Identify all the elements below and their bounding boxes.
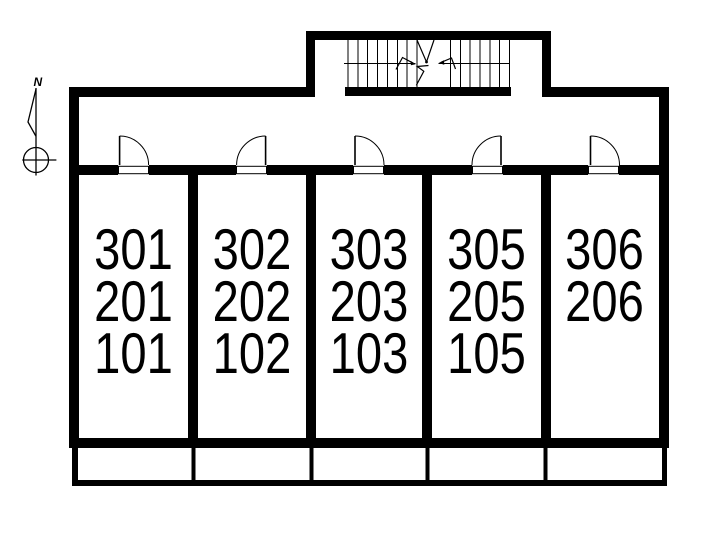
svg-text:101: 101	[94, 322, 173, 387]
svg-text:103: 103	[330, 322, 409, 387]
svg-text:105: 105	[447, 322, 526, 387]
svg-text:206: 206	[565, 270, 644, 335]
svg-text:102: 102	[213, 322, 292, 387]
svg-text:N: N	[34, 75, 43, 89]
